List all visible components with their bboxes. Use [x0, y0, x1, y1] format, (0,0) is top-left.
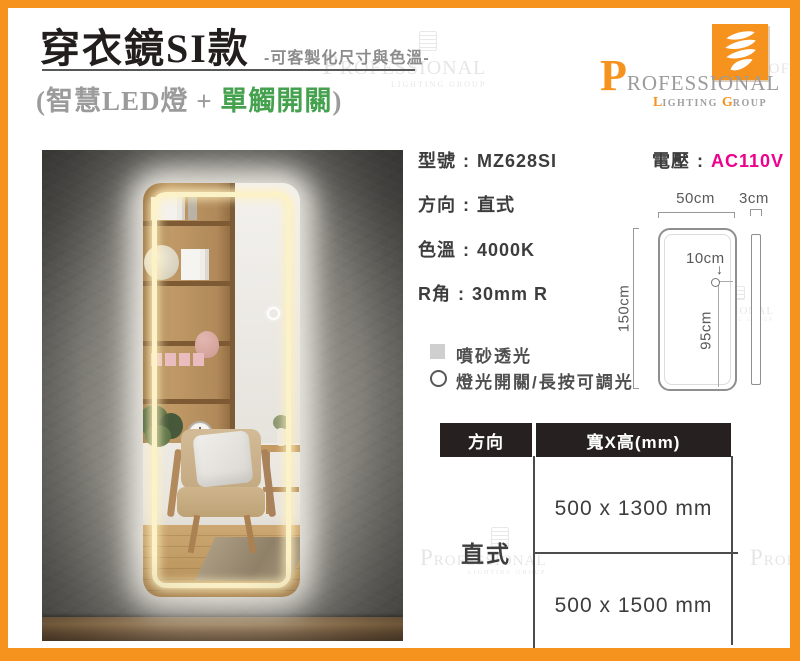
page-title: 穿衣鏡SI款	[40, 16, 250, 74]
dim-thickness-line	[750, 209, 762, 216]
table-header-orientation: 方向	[440, 423, 532, 457]
frosted-square-icon	[430, 344, 445, 359]
brand-subtitle: LIGHTING GROUP	[653, 93, 767, 111]
frame-border	[0, 0, 800, 8]
dim-switch-height-label: 95cm	[698, 305, 715, 357]
brand-name-rest: ROFESSIONAL	[627, 71, 780, 95]
tagline-prefix: (智慧LED燈 +	[36, 86, 220, 116]
light-switch-circle-icon	[430, 370, 447, 387]
spec-orientation: 方向:直式	[418, 191, 515, 217]
tagline: (智慧LED燈 + 單觸開關)	[36, 79, 342, 118]
legend-switch-label: 燈光開關/長按可調光	[456, 368, 634, 393]
dim-thickness-label: 3cm	[739, 190, 769, 207]
mirror-side-view	[751, 234, 761, 385]
tagline-suffix: )	[332, 86, 342, 116]
frame-border	[0, 648, 800, 661]
dim-switch-offset-line	[719, 281, 733, 282]
table-orientation-cell: 直式	[440, 535, 532, 569]
table-size-cell: 500 x 1300 mm	[536, 497, 731, 521]
frame-border	[0, 0, 8, 661]
page-subtitle: -可客製化尺寸與色溫-	[264, 44, 430, 68]
spec-voltage: 電壓:AC110V	[652, 147, 784, 173]
table-size-cell: 500 x 1500 mm	[536, 594, 731, 618]
table-header-size: 寬X高(mm)	[536, 423, 731, 457]
touch-switch-marker-icon	[711, 278, 720, 287]
product-flyer: { "colors": { "accent_orange": "#F6921E"…	[0, 0, 800, 661]
spec-model: 型號:MZ628SI	[418, 147, 557, 173]
title-divider	[42, 69, 415, 71]
dim-height-label: 150cm	[616, 277, 633, 341]
spec-color-temperature: 色溫:4000K	[418, 236, 535, 262]
brand-initial: P	[600, 51, 627, 100]
dim-height-line	[633, 228, 639, 389]
table-row-divider	[533, 552, 738, 554]
table-right-border	[731, 456, 733, 645]
voltage-value: AC110V	[711, 151, 784, 171]
dim-width-line	[658, 212, 735, 218]
dim-width-label: 50cm	[658, 190, 733, 207]
spec-corner-radius: R角:30mm R	[418, 280, 548, 306]
legend-frosted-label: 噴砂透光	[456, 342, 532, 367]
tagline-highlight: 單觸開關	[220, 86, 332, 116]
frame-border	[790, 0, 800, 661]
dim-switch-height-line	[718, 283, 719, 387]
arrow-down-icon: ↓	[716, 261, 723, 277]
product-photo	[42, 150, 403, 641]
